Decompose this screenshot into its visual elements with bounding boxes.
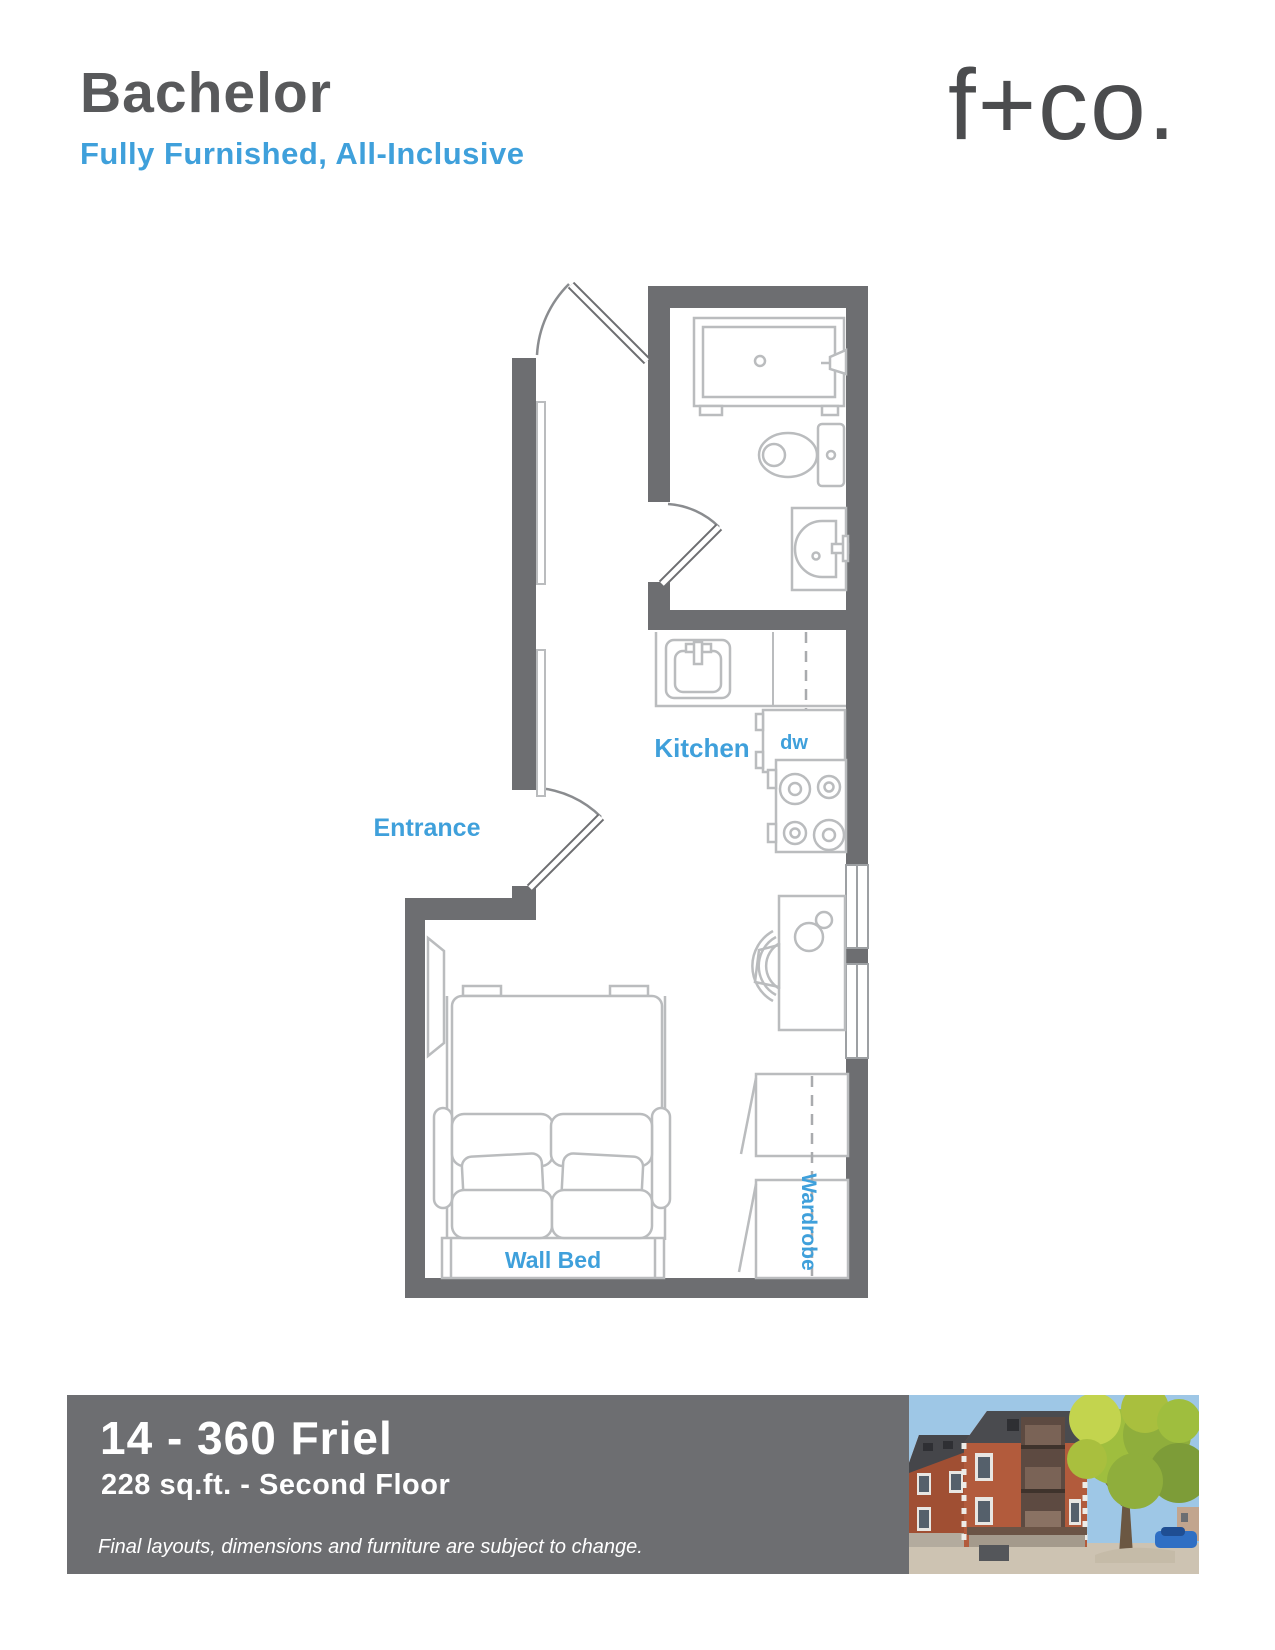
desk-chair (752, 931, 780, 1001)
label-wardrobe: Wardrobe (797, 1173, 820, 1270)
vanity-sink (792, 508, 848, 590)
label-wall-bed: Wall Bed (505, 1247, 601, 1273)
desk (779, 896, 845, 1030)
label-kitchen: Kitchen (654, 733, 749, 763)
unit-details: 228 sq.ft. - Second Floor (101, 1469, 450, 1502)
label-dishwasher: dw (780, 732, 808, 754)
toilet (759, 424, 844, 486)
kitchen-sink (666, 640, 730, 698)
sofa (434, 1108, 670, 1238)
flyer-page: Bachelor Fully Furnished, All-Inclusive … (0, 0, 1275, 1650)
bathroom-door (662, 504, 719, 584)
shower (694, 318, 846, 415)
entry-door (537, 284, 647, 361)
footer-bar: 14 - 360 Friel 228 sq.ft. - Second Floor… (67, 1395, 1199, 1574)
building-photo (909, 1395, 1199, 1574)
leaning-mirror (428, 938, 444, 1056)
unit-title: 14 - 360 Friel (100, 1411, 393, 1465)
wardrobe (739, 1074, 848, 1278)
label-entrance: Entrance (374, 814, 481, 842)
footer-disclaimer: Final layouts, dimensions and furniture … (98, 1536, 643, 1559)
interior-door (530, 788, 601, 888)
corridor-trim (537, 402, 545, 796)
stove (768, 760, 846, 852)
